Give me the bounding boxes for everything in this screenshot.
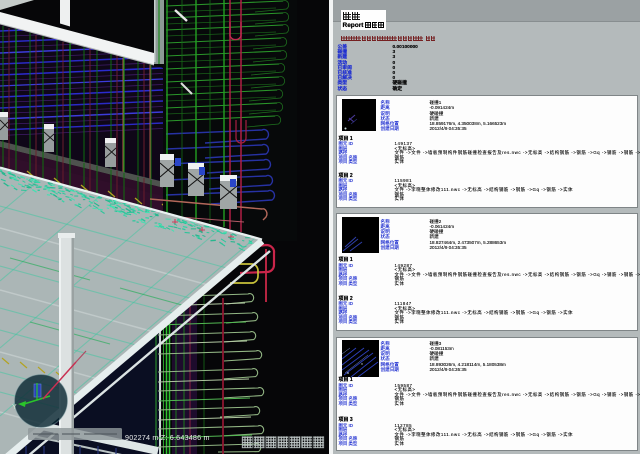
svg-text:902274 m Z: 6.643486 m: 902274 m Z: 6.643486 m [125, 433, 210, 442]
svg-text:Y: Y [12, 404, 17, 411]
